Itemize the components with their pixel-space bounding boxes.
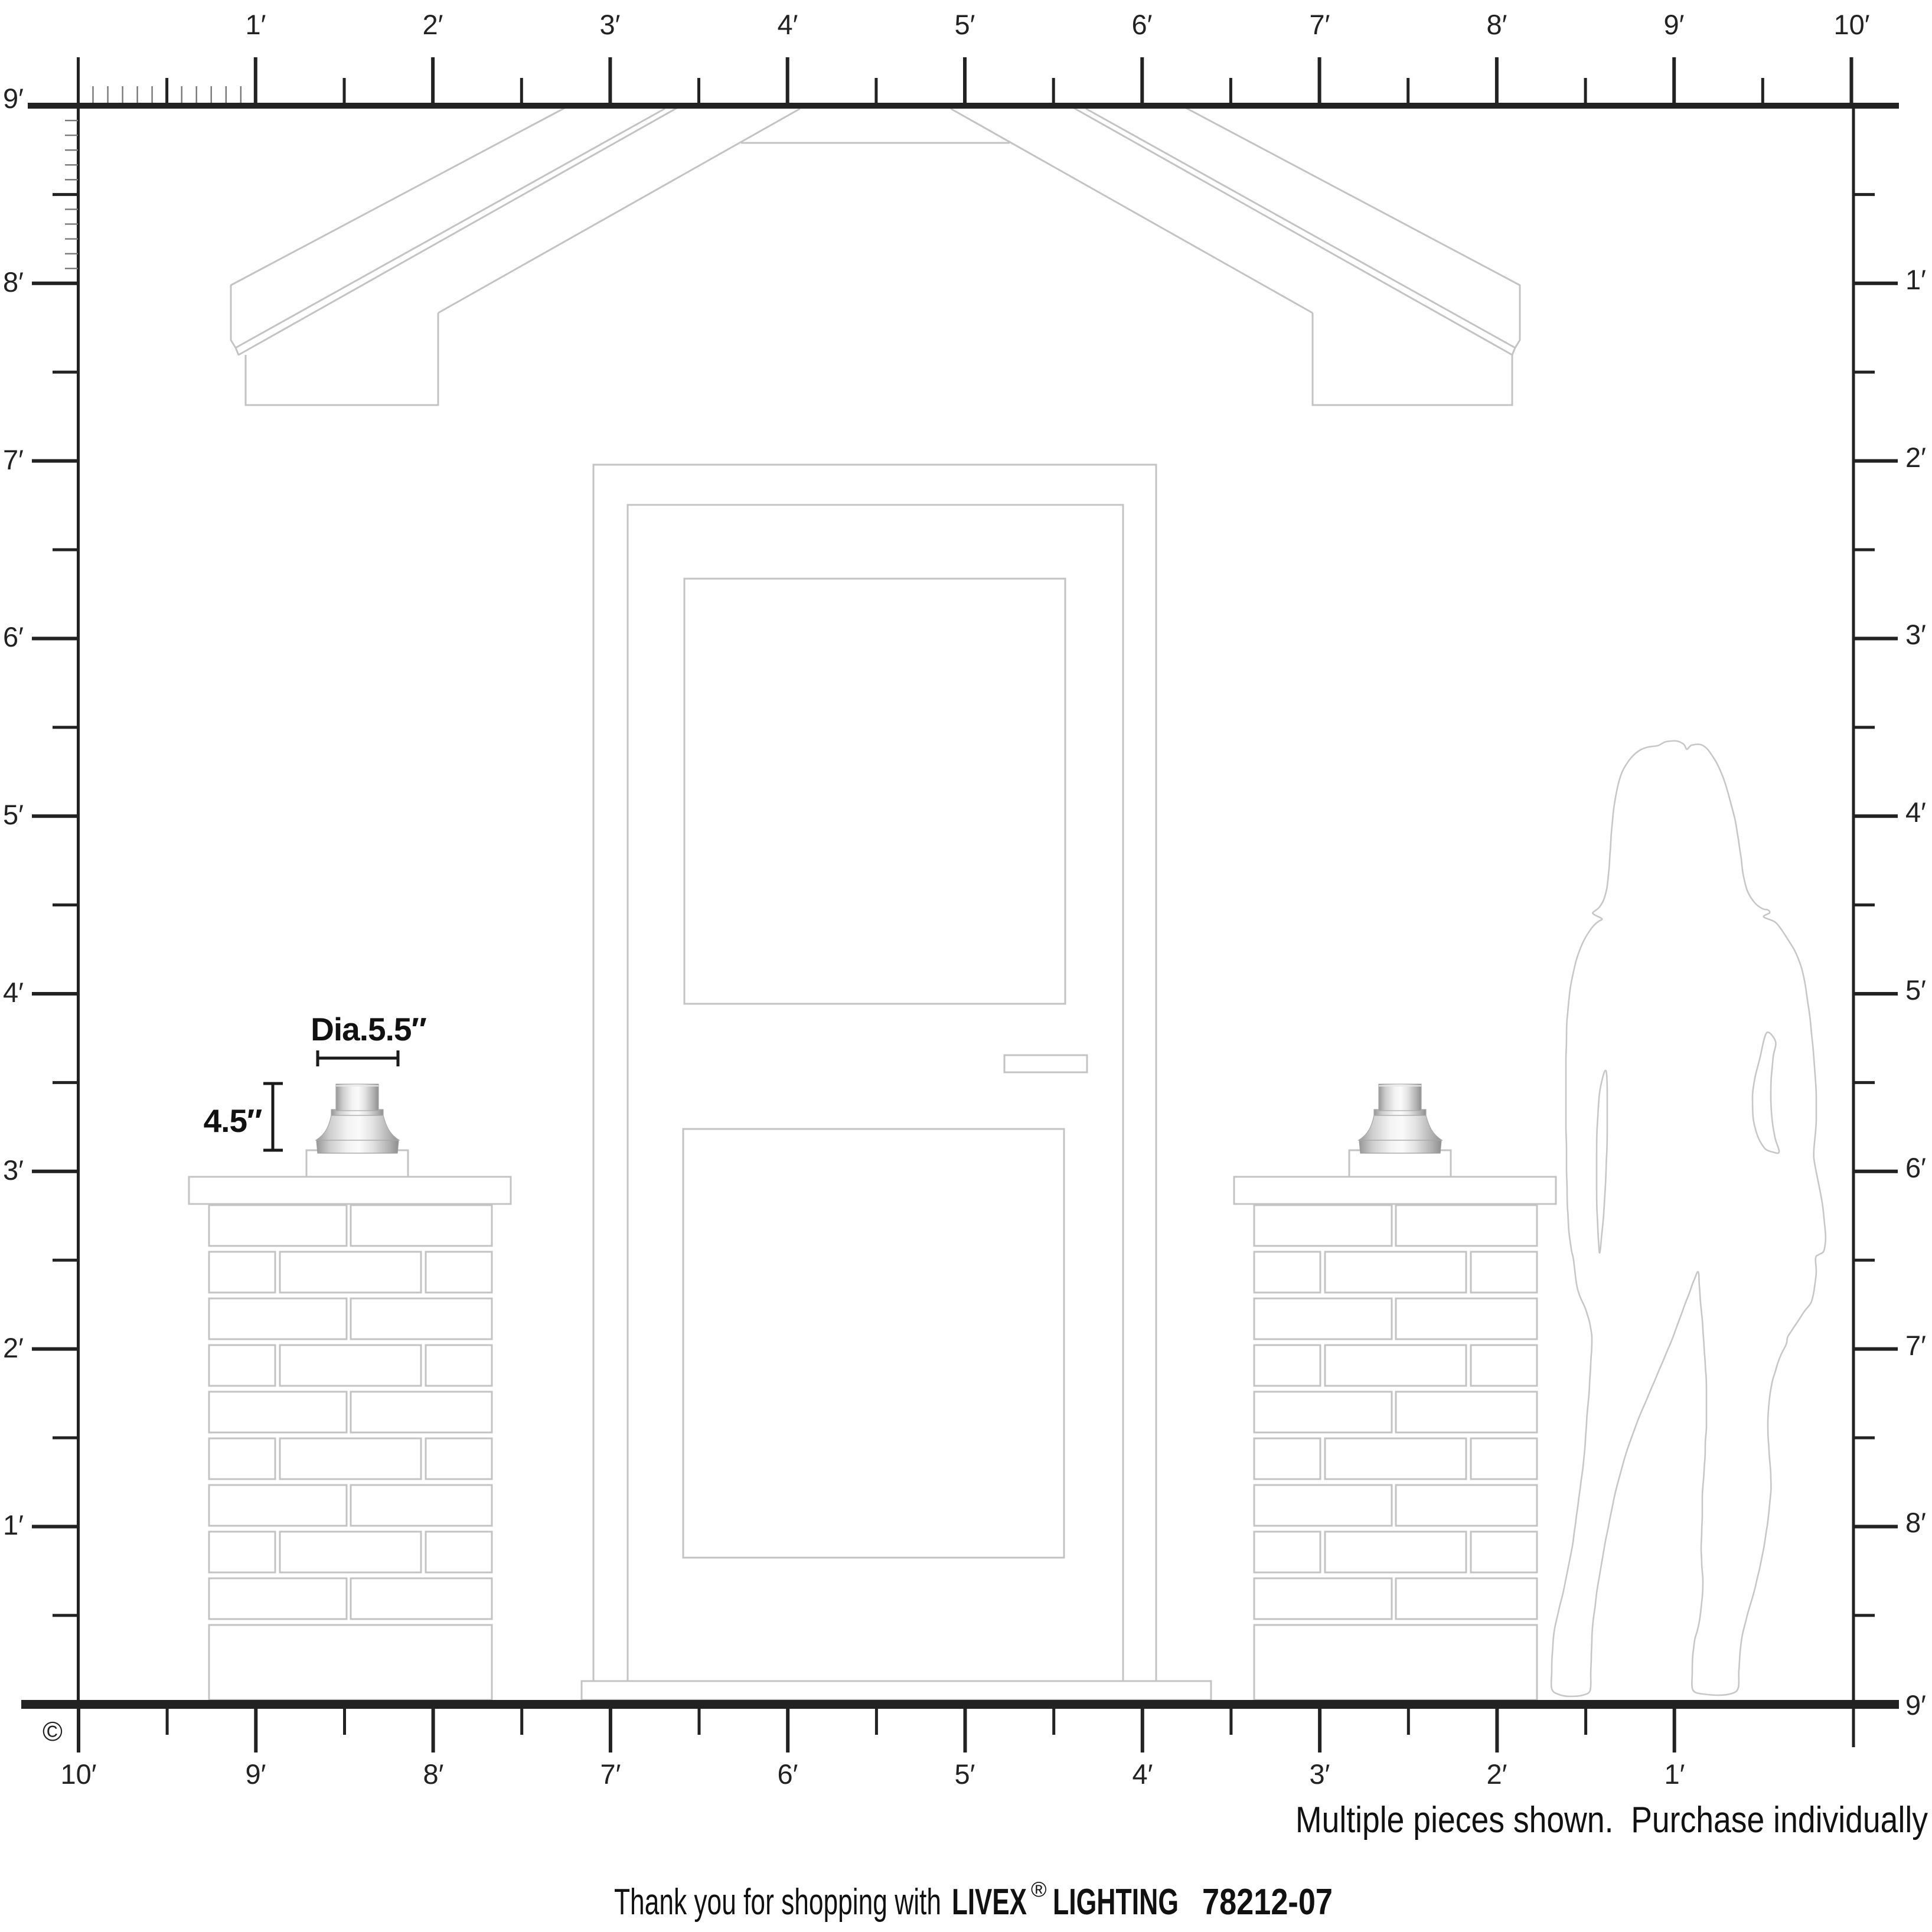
svg-text:1′: 1′	[3, 1509, 24, 1541]
svg-text:2′: 2′	[1487, 1758, 1507, 1790]
svg-text:8′: 8′	[1905, 1507, 1926, 1538]
svg-text:2′: 2′	[1905, 442, 1926, 473]
svg-text:5′: 5′	[3, 799, 24, 830]
svg-text:©: ©	[43, 1716, 63, 1747]
svg-text:9′: 9′	[1664, 9, 1685, 40]
svg-text:4′: 4′	[778, 9, 798, 40]
svg-text:3′: 3′	[1310, 1758, 1330, 1790]
svg-text:6′: 6′	[1905, 1152, 1926, 1183]
svg-text:1′: 1′	[246, 9, 266, 40]
svg-text:7′: 7′	[3, 444, 24, 475]
svg-text:78212-07: 78212-07	[1202, 1882, 1333, 1923]
svg-text:3′: 3′	[3, 1154, 24, 1186]
svg-text:10′: 10′	[60, 1758, 96, 1790]
svg-text:9′: 9′	[3, 83, 24, 114]
svg-text:6′: 6′	[778, 1758, 798, 1790]
svg-text:LIVEX: LIVEX	[952, 1882, 1027, 1923]
svg-text:4′: 4′	[1905, 797, 1926, 828]
svg-text:3′: 3′	[600, 9, 621, 40]
svg-text:8′: 8′	[1487, 9, 1507, 40]
svg-text:2′: 2′	[423, 9, 443, 40]
svg-text:5′: 5′	[1905, 974, 1926, 1006]
svg-text:®: ®	[1031, 1877, 1047, 1901]
svg-text:4′: 4′	[3, 977, 24, 1008]
svg-text:5′: 5′	[955, 1758, 975, 1790]
svg-text:1′: 1′	[1905, 264, 1926, 295]
svg-text:LIGHTING: LIGHTING	[1053, 1882, 1179, 1923]
svg-text:9′: 9′	[246, 1758, 266, 1790]
svg-text:1′: 1′	[1665, 1758, 1685, 1790]
svg-text:4′: 4′	[1133, 1758, 1153, 1790]
svg-text:8′: 8′	[423, 1758, 444, 1790]
svg-text:3′: 3′	[1905, 619, 1926, 650]
svg-text:7′: 7′	[1905, 1330, 1926, 1361]
svg-text:5′: 5′	[955, 9, 975, 40]
svg-text:2′: 2′	[3, 1332, 24, 1363]
svg-text:10′: 10′	[1833, 9, 1869, 40]
svg-text:9′: 9′	[1905, 1689, 1926, 1721]
svg-text:7′: 7′	[601, 1758, 621, 1790]
svg-text:Multiple pieces shown. Purcha: Multiple pieces shown. Purchase individu…	[1295, 1800, 1928, 1840]
svg-text:8′: 8′	[3, 266, 24, 298]
svg-text:Dia.5.5″: Dia.5.5″	[311, 1011, 426, 1047]
svg-text:4.5″: 4.5″	[204, 1102, 262, 1139]
svg-text:Thank you for shopping with: Thank you for shopping with	[614, 1882, 941, 1923]
svg-text:7′: 7′	[1310, 9, 1330, 40]
svg-text:6′: 6′	[3, 621, 24, 652]
svg-text:6′: 6′	[1132, 9, 1153, 40]
